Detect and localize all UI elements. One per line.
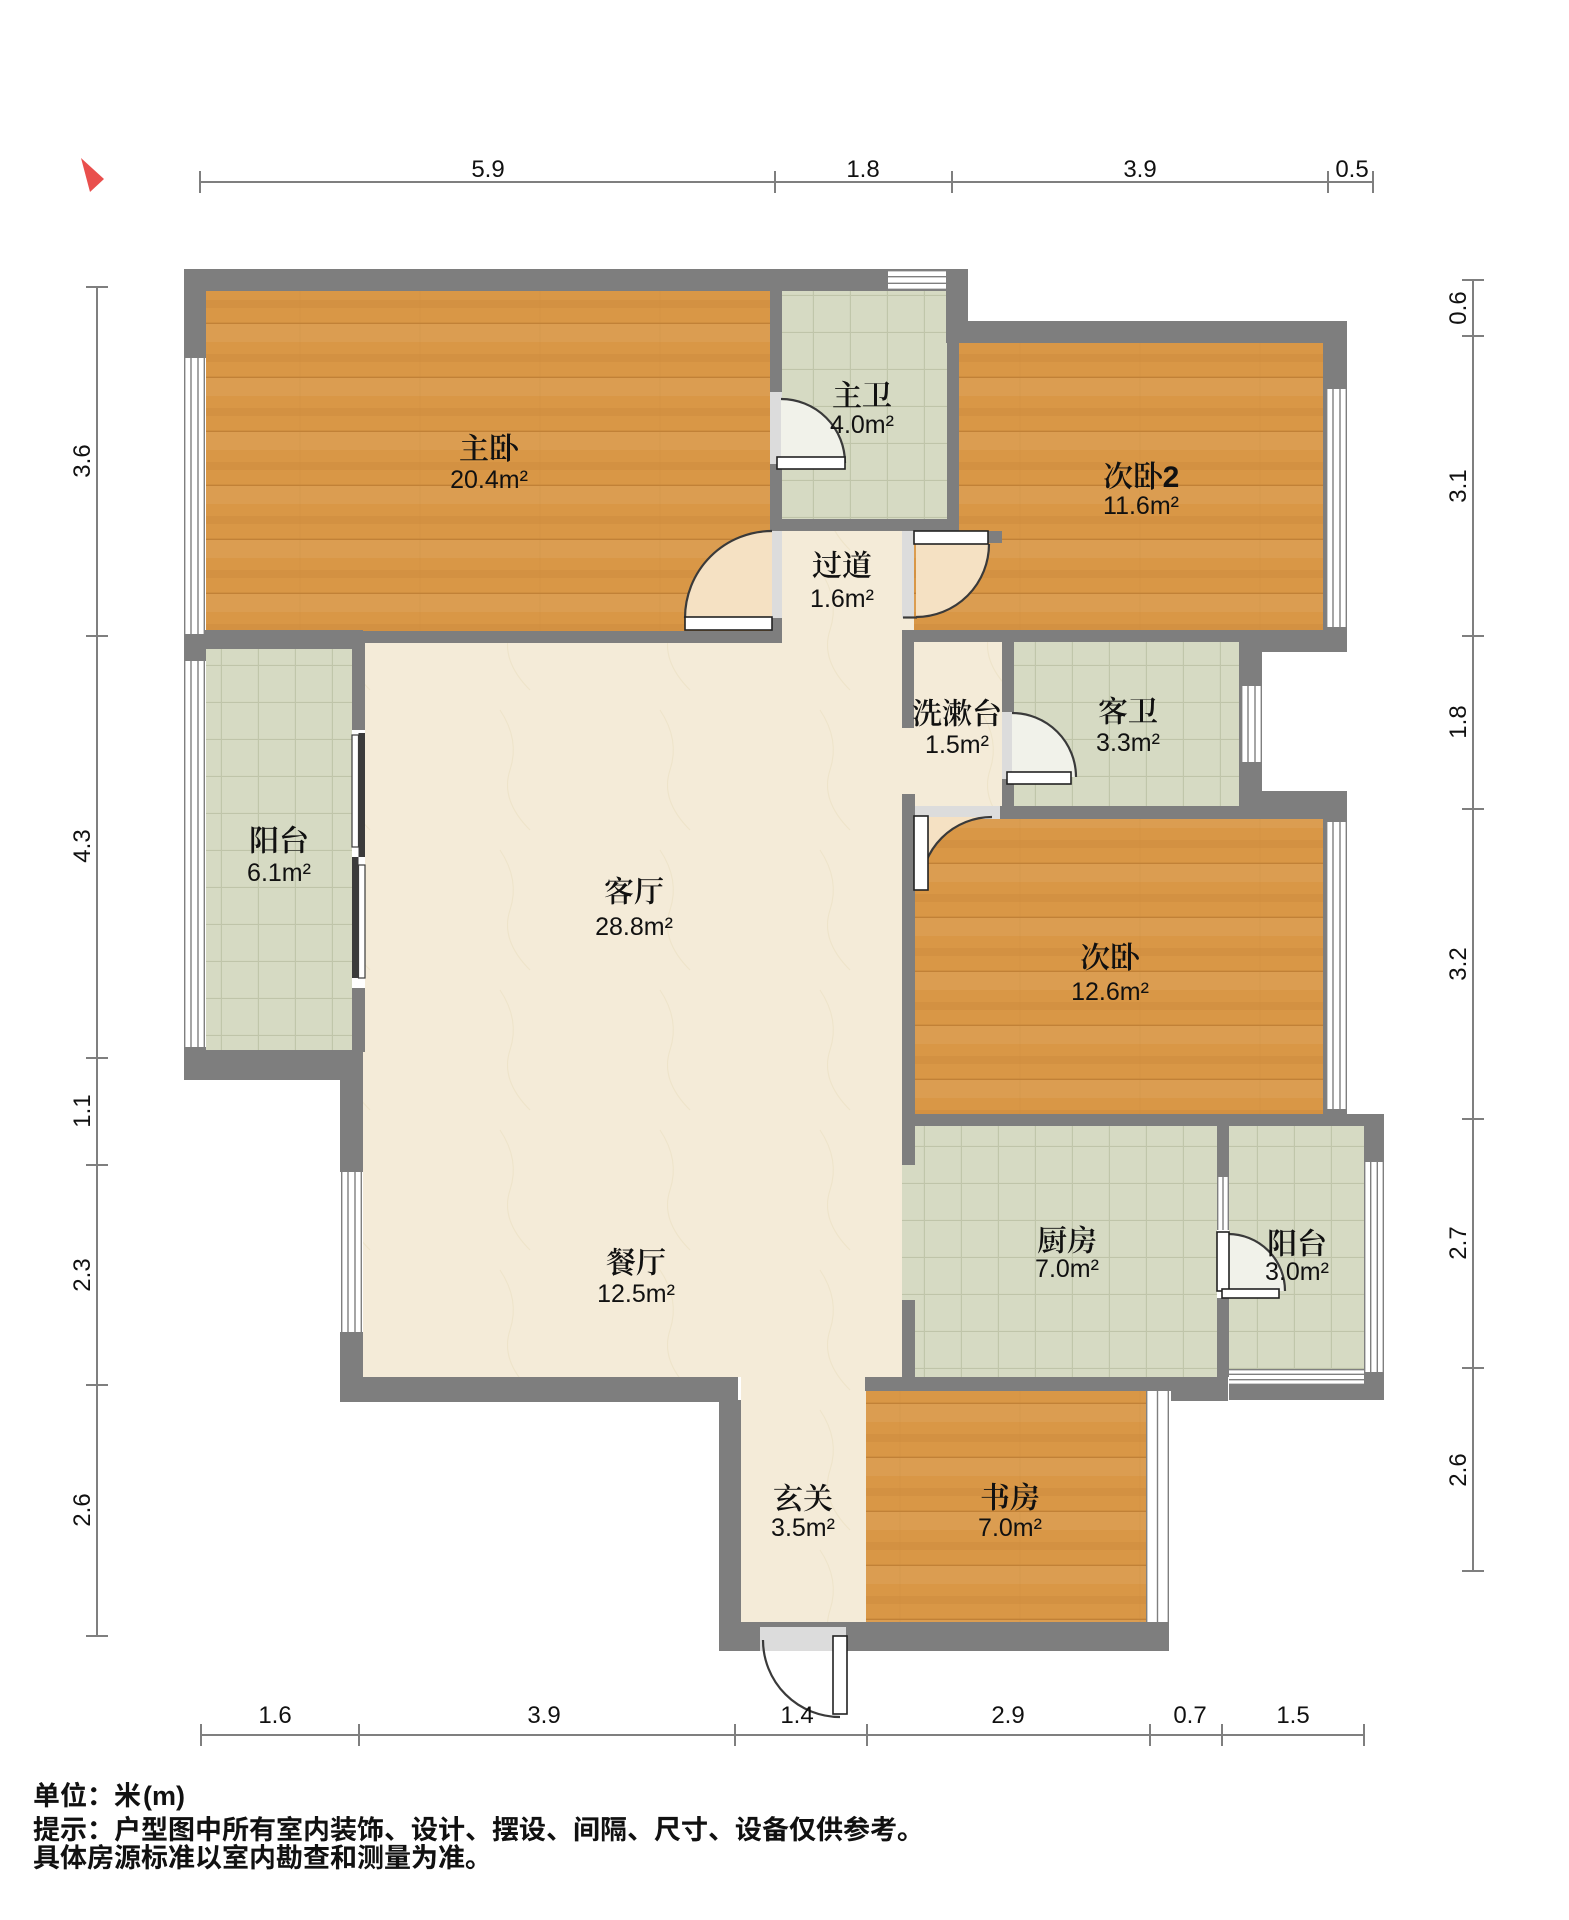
svg-text:(m): (m) bbox=[143, 1781, 185, 1811]
svg-text:0.7: 0.7 bbox=[1173, 1702, 1206, 1729]
svg-text:12.6m²: 12.6m² bbox=[1071, 978, 1149, 1006]
svg-text:2.6: 2.6 bbox=[69, 1493, 96, 1526]
svg-text:4.0m²: 4.0m² bbox=[830, 411, 894, 439]
svg-text:3.2: 3.2 bbox=[1445, 947, 1472, 980]
svg-text:0.6: 0.6 bbox=[1445, 291, 1472, 324]
svg-text:0.5: 0.5 bbox=[1335, 156, 1368, 183]
svg-text:1.6m²: 1.6m² bbox=[810, 585, 874, 613]
svg-text:3.1: 3.1 bbox=[1445, 469, 1472, 502]
svg-text:7.0m²: 7.0m² bbox=[978, 1514, 1042, 1542]
svg-text:12.5m²: 12.5m² bbox=[597, 1280, 675, 1308]
svg-text:1.8: 1.8 bbox=[846, 156, 879, 183]
svg-text:1.6: 1.6 bbox=[258, 1702, 291, 1729]
svg-text:1.5m²: 1.5m² bbox=[925, 731, 989, 759]
svg-text:3.3m²: 3.3m² bbox=[1096, 729, 1160, 757]
svg-text:1.5: 1.5 bbox=[1276, 1702, 1309, 1729]
svg-text:3.5m²: 3.5m² bbox=[771, 1514, 835, 1542]
svg-text:2.3: 2.3 bbox=[69, 1258, 96, 1291]
svg-text:3.6: 3.6 bbox=[69, 444, 96, 477]
svg-text:3.9: 3.9 bbox=[1123, 156, 1156, 183]
svg-text:11.6m²: 11.6m² bbox=[1103, 492, 1179, 520]
svg-text:3.9: 3.9 bbox=[527, 1702, 560, 1729]
svg-text:6.1m²: 6.1m² bbox=[247, 859, 311, 887]
svg-text:2.6: 2.6 bbox=[1445, 1453, 1472, 1486]
svg-text:2.7: 2.7 bbox=[1445, 1226, 1472, 1259]
svg-text:1.8: 1.8 bbox=[1445, 705, 1472, 738]
svg-text:20.4m²: 20.4m² bbox=[450, 466, 528, 494]
svg-text:2.9: 2.9 bbox=[991, 1702, 1024, 1729]
svg-text:1.1: 1.1 bbox=[69, 1094, 96, 1127]
svg-text:7.0m²: 7.0m² bbox=[1035, 1255, 1099, 1283]
svg-text:2: 2 bbox=[1163, 461, 1180, 494]
svg-text:28.8m²: 28.8m² bbox=[595, 913, 673, 941]
svg-text:5.9: 5.9 bbox=[471, 156, 504, 183]
svg-text:3.0m²: 3.0m² bbox=[1265, 1258, 1329, 1286]
svg-text:4.3: 4.3 bbox=[69, 829, 96, 862]
svg-text:1.4: 1.4 bbox=[780, 1702, 813, 1729]
